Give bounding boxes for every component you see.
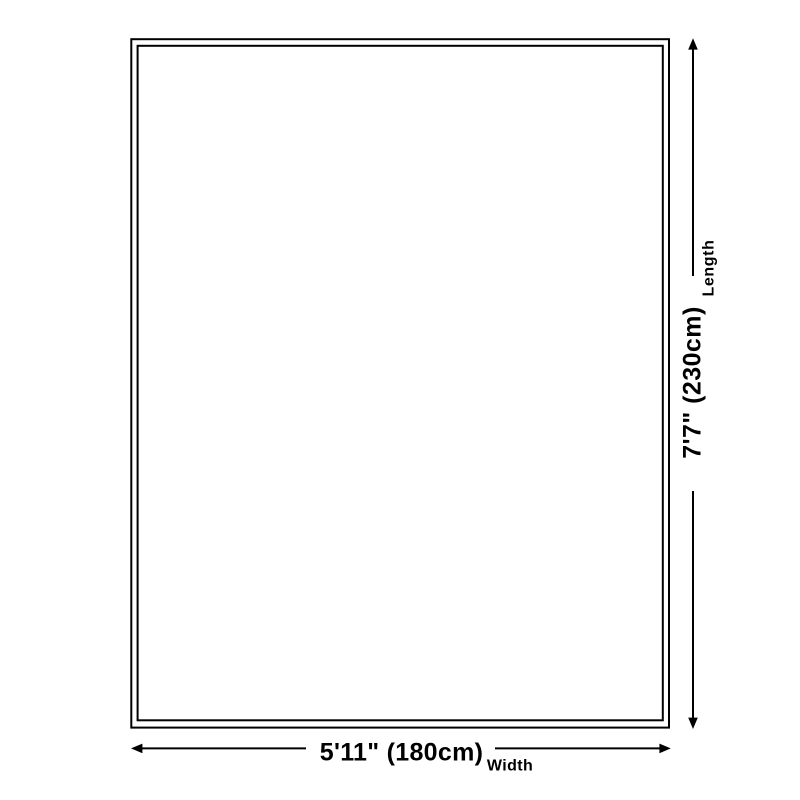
svg-text:Width: Width <box>487 758 533 775</box>
svg-text:5'11" (180cm): 5'11" (180cm) <box>320 739 483 767</box>
svg-text:Length: Length <box>701 240 718 297</box>
svg-text:7'7" (230cm): 7'7" (230cm) <box>679 306 707 458</box>
